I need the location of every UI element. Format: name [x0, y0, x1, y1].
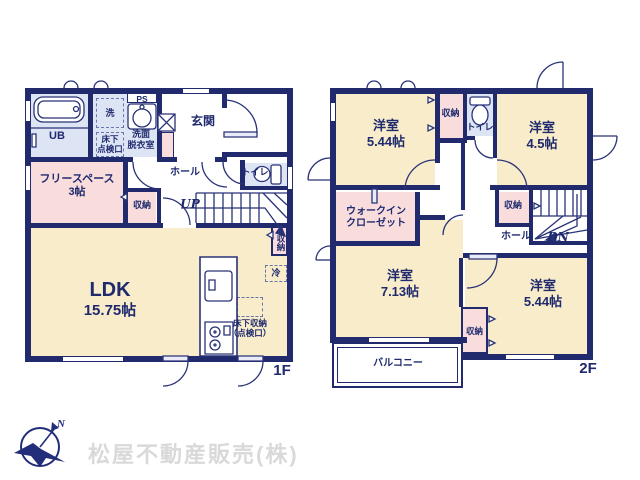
room-label: 床下点検口 — [96, 134, 124, 154]
floor1-plan: UB 洗 PS 床下点検口 洗面脱衣室 玄関 フリースペース3帖 収納 ホール … — [25, 88, 293, 362]
room-label: ホール — [494, 231, 538, 243]
room-label: 収納 — [497, 200, 529, 211]
closet-door-mark — [489, 340, 495, 346]
floor-label-1f: 1F — [267, 362, 297, 380]
wic-door-leaf — [372, 189, 377, 203]
room-label: フリースペース3帖 — [33, 173, 121, 199]
room-label: ウォークインクローゼット — [334, 206, 418, 230]
room-label: LDK15.75帖 — [60, 278, 160, 320]
wash-basin-icon — [128, 104, 156, 129]
door-arc — [133, 162, 160, 189]
room-label: トイレ — [241, 167, 269, 178]
room-label: 収納 — [127, 200, 157, 211]
closet-door-mark — [428, 125, 434, 131]
compass-needle — [40, 428, 55, 447]
room-label: トイレ — [463, 122, 497, 133]
vent-window — [367, 81, 381, 88]
room-label: UP — [176, 197, 204, 211]
bathtub-icon — [34, 97, 84, 122]
room-label: 洋室7.13帖 — [362, 268, 438, 299]
front-door — [224, 100, 257, 137]
room-label: 冷 — [266, 268, 286, 279]
room-label: ホール — [163, 167, 207, 179]
north-label: N — [56, 418, 66, 430]
room-label: 収納 — [274, 230, 286, 254]
room-label: DN — [542, 230, 574, 244]
room-label: 洋室4.5帖 — [512, 120, 572, 151]
room-label: 床下収納（点検口） — [225, 318, 275, 338]
room-label: 収納 — [436, 108, 465, 119]
door-arc — [497, 160, 527, 190]
door-arc — [443, 215, 463, 235]
room-label: 洋室5.44帖 — [510, 278, 576, 309]
room-label: UB — [43, 130, 71, 143]
room-label: バルコニー — [354, 358, 442, 370]
vent-window — [401, 81, 415, 88]
room-label: 洗面脱衣室 — [122, 129, 160, 151]
compass-logo: N — [10, 415, 72, 475]
closet-door-mark — [267, 232, 273, 239]
closet-door-mark — [489, 316, 495, 322]
room-label: 洗 — [101, 108, 119, 119]
room-label: PS — [128, 94, 156, 104]
room-label: 収納 — [462, 326, 487, 336]
company-name: 松屋不動産販売(株) — [88, 437, 299, 469]
toilet-icon — [470, 97, 490, 125]
patio-doors — [163, 356, 263, 386]
room-label: 玄関 — [181, 114, 225, 128]
door-arc — [475, 140, 493, 158]
vent-window — [64, 81, 78, 88]
room-label: 洋室5.44帖 — [350, 118, 422, 149]
floor-label-2f: 2F — [573, 360, 603, 378]
floor2-plan: 洋室5.44帖 収納 トイレ 洋室4.5帖 ウォークインクローゼット 収納 ホー… — [330, 88, 593, 360]
closet-door-mark — [534, 203, 540, 209]
kitchen-counter-icon — [200, 257, 237, 356]
door-se — [467, 254, 497, 288]
closet-door-mark — [428, 97, 434, 103]
door-arc — [405, 160, 435, 190]
vent-window — [94, 81, 108, 88]
shoe-cabinet-icon — [158, 114, 175, 131]
